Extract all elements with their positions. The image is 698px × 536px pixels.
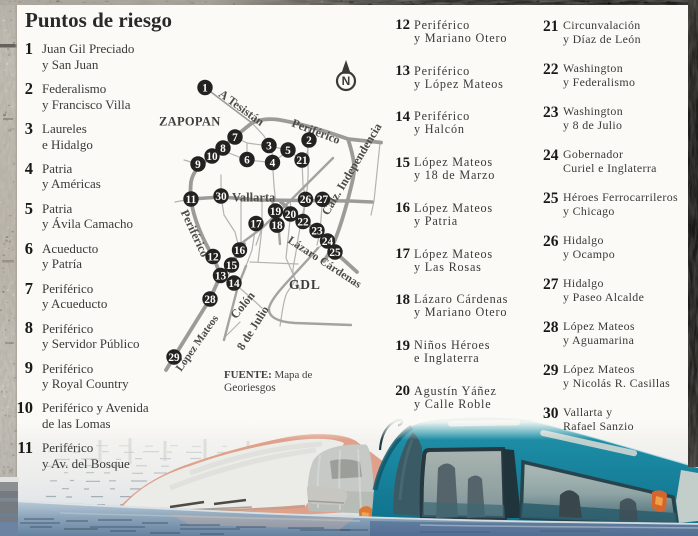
- svg-text:13: 13: [215, 270, 227, 282]
- svg-text:11: 11: [186, 194, 197, 206]
- svg-text:N: N: [342, 74, 351, 88]
- svg-text:29: 29: [168, 352, 180, 364]
- svg-text:1: 1: [202, 82, 208, 94]
- svg-text:27: 27: [317, 194, 329, 206]
- svg-text:Georiesgos: Georiesgos: [224, 382, 276, 394]
- svg-text:7: 7: [232, 132, 238, 144]
- svg-text:20: 20: [285, 209, 297, 221]
- svg-text:10: 10: [206, 151, 218, 163]
- svg-text:30: 30: [215, 191, 227, 203]
- svg-text:12: 12: [207, 251, 219, 263]
- svg-text:FUENTE: Mapa de: FUENTE: Mapa de: [224, 369, 312, 381]
- svg-text:GDL: GDL: [289, 277, 321, 292]
- svg-text:17: 17: [250, 218, 262, 230]
- svg-text:22: 22: [297, 216, 309, 228]
- svg-text:5: 5: [285, 145, 291, 157]
- svg-text:18: 18: [271, 220, 283, 232]
- svg-text:16: 16: [234, 245, 246, 257]
- svg-text:3: 3: [266, 140, 272, 152]
- svg-text:25: 25: [329, 247, 341, 259]
- svg-text:28: 28: [204, 294, 216, 306]
- svg-text:15: 15: [226, 260, 238, 272]
- svg-text:4: 4: [270, 157, 276, 169]
- svg-text:14: 14: [228, 278, 240, 290]
- svg-text:19: 19: [270, 206, 282, 218]
- svg-text:9: 9: [195, 159, 201, 171]
- svg-text:6: 6: [244, 154, 250, 166]
- svg-text:ZAPOPAN: ZAPOPAN: [159, 115, 221, 129]
- svg-text:26: 26: [300, 194, 312, 206]
- svg-text:21: 21: [296, 155, 308, 167]
- svg-text:8: 8: [220, 143, 226, 155]
- svg-text:Vallarta: Vallarta: [232, 191, 276, 205]
- svg-text:A Tesistán: A Tesistán: [216, 87, 267, 129]
- svg-text:2: 2: [306, 135, 312, 147]
